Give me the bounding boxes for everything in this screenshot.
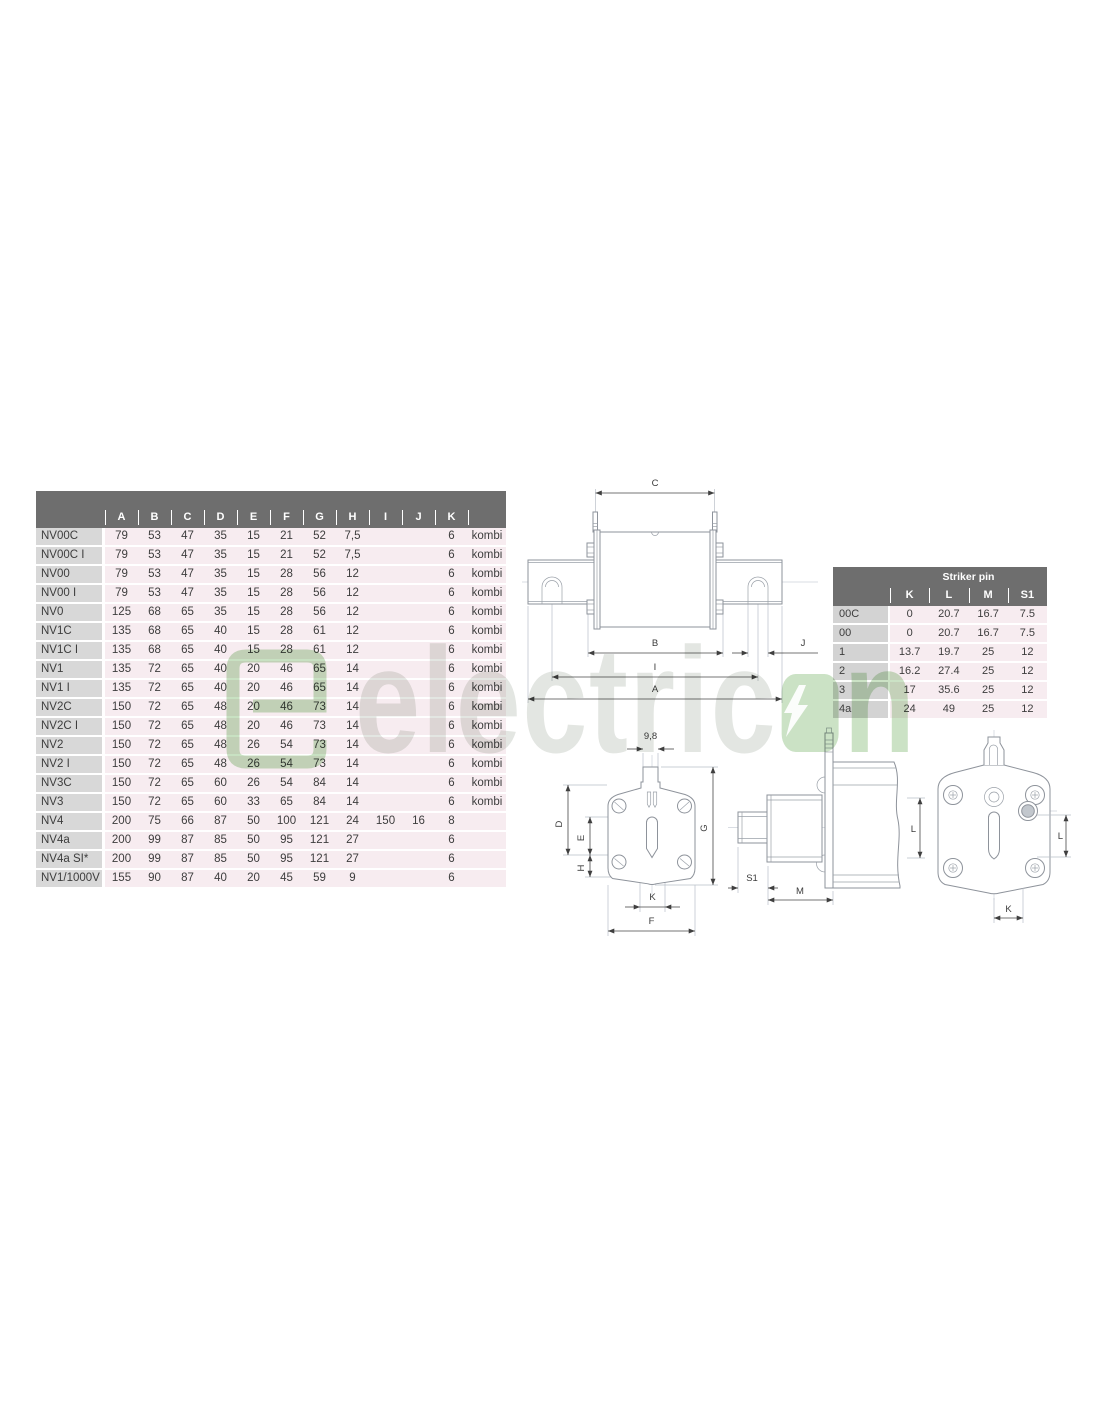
table-row: NV4a2009987855095121276 (36, 832, 506, 851)
cell: kombi (468, 642, 506, 659)
cell: 12 (336, 604, 369, 621)
col-header-m: M (969, 588, 1008, 603)
cell: 12 (336, 585, 369, 602)
cell: 12 (1008, 663, 1047, 680)
dim-label-i: I (654, 662, 657, 673)
col-header-g: G (303, 510, 336, 525)
cell (402, 585, 435, 602)
cell (402, 623, 435, 640)
cell (402, 851, 435, 868)
cell (468, 813, 506, 830)
cell: 6 (435, 737, 468, 754)
row-label: NV4 (36, 813, 105, 830)
cell: 20 (237, 699, 270, 716)
cell: 150 (369, 813, 402, 830)
cell: 12 (336, 623, 369, 640)
cell: 49 (929, 701, 968, 718)
main-table: ABCDEFGHIJKNV00C795347351521527,56kombiN… (36, 491, 506, 889)
cell: 35 (204, 585, 237, 602)
dim-label-98: 9,8 (644, 731, 657, 742)
cell: 53 (138, 566, 171, 583)
col-header-j: J (402, 510, 435, 525)
cell: 12 (336, 566, 369, 583)
cell: 16.2 (890, 663, 929, 680)
cell: 150 (105, 718, 138, 735)
cell: 48 (204, 699, 237, 716)
cell: 121 (303, 832, 336, 849)
cell: kombi (468, 528, 506, 545)
cell: 12 (1008, 682, 1047, 699)
cell: 150 (105, 775, 138, 792)
col-header-e: E (237, 510, 270, 525)
dim-label-s1: S1 (746, 873, 758, 884)
cell: 20.7 (929, 625, 968, 642)
table-row: 00020.716.77.5 (833, 625, 1047, 644)
cell: 65 (171, 794, 204, 811)
cell: 27 (336, 832, 369, 849)
row-label: NV1C (36, 623, 105, 640)
cell: 135 (105, 642, 138, 659)
dim-label-h: H (576, 864, 587, 871)
cell: 28 (270, 566, 303, 583)
table-row: NV1C I135686540152861126kombi (36, 642, 506, 661)
dim-label-d: D (554, 820, 565, 827)
cell: 26 (237, 775, 270, 792)
cell: 65 (171, 737, 204, 754)
cell (402, 870, 435, 887)
cell: 28 (270, 623, 303, 640)
cell (402, 775, 435, 792)
cell: 150 (105, 737, 138, 754)
row-label: 3 (833, 682, 890, 699)
cell (369, 528, 402, 545)
cell: 73 (303, 737, 336, 754)
cell: 6 (435, 585, 468, 602)
cell (402, 832, 435, 849)
cell: 79 (105, 566, 138, 583)
cell (369, 870, 402, 887)
row-label: NV00C I (36, 547, 105, 564)
cell: 9 (336, 870, 369, 887)
cell: kombi (468, 756, 506, 773)
cell (369, 661, 402, 678)
cell: 87 (171, 851, 204, 868)
cell: 47 (171, 547, 204, 564)
cell: 6 (435, 832, 468, 849)
cell: 56 (303, 566, 336, 583)
cell: 6 (435, 756, 468, 773)
datasheet-page: ABCDEFGHIJKNV00C795347351521527,56kombiN… (0, 0, 1100, 1422)
cell: 6 (435, 794, 468, 811)
cell: 61 (303, 623, 336, 640)
cell: 65 (171, 642, 204, 659)
cell: 40 (204, 661, 237, 678)
cell (402, 566, 435, 583)
cell: 6 (435, 566, 468, 583)
col-header-c: C (171, 510, 204, 525)
cell: 13.7 (890, 644, 929, 661)
cell (402, 661, 435, 678)
cell: 14 (336, 737, 369, 754)
cell: 25 (969, 644, 1008, 661)
cell: 16.7 (969, 606, 1008, 623)
cell: kombi (468, 585, 506, 602)
cell (402, 718, 435, 735)
cell: 65 (303, 661, 336, 678)
cell: 68 (138, 642, 171, 659)
table-row: 113.719.72512 (833, 644, 1047, 663)
fuse-side-view-drawing: S1 M L (725, 725, 925, 905)
cell: 53 (138, 528, 171, 545)
col-header-b: B (138, 510, 171, 525)
cell: 54 (270, 756, 303, 773)
table-row: NV00 I79534735152856126kombi (36, 585, 506, 604)
dim-label-k2: K (1005, 904, 1012, 915)
col-header-s1: S1 (1008, 588, 1047, 603)
table-row: NV2 I150726548265473146kombi (36, 756, 506, 775)
cell: 6 (435, 604, 468, 621)
cell: kombi (468, 718, 506, 735)
cell: 6 (435, 718, 468, 735)
row-label: NV0 (36, 604, 105, 621)
cell: 40 (204, 870, 237, 887)
cell: kombi (468, 680, 506, 697)
cell: 125 (105, 604, 138, 621)
cell: 35.6 (929, 682, 968, 699)
cell: 12 (1008, 644, 1047, 661)
row-label: 1 (833, 644, 890, 661)
cell (369, 680, 402, 697)
cell: 50 (237, 813, 270, 830)
row-label: NV3 (36, 794, 105, 811)
cell: 79 (105, 585, 138, 602)
cell: kombi (468, 566, 506, 583)
cell (369, 794, 402, 811)
row-label: NV4a (36, 832, 105, 849)
cell: 6 (435, 775, 468, 792)
dim-label-b: B (652, 638, 658, 649)
cell: 121 (303, 851, 336, 868)
row-label: 00C (833, 606, 890, 623)
cell: 20 (237, 870, 270, 887)
cell (369, 585, 402, 602)
table-row: NV3150726560336584146kombi (36, 794, 506, 813)
cell: 65 (171, 718, 204, 735)
cell: 35 (204, 547, 237, 564)
col-header-blank (468, 510, 506, 525)
cell: 8 (435, 813, 468, 830)
cell: 135 (105, 623, 138, 640)
cell: 19.7 (929, 644, 968, 661)
cell: 20 (237, 680, 270, 697)
cell: 72 (138, 699, 171, 716)
cell: 14 (336, 699, 369, 716)
table-row: NV2C I150726548204673146kombi (36, 718, 506, 737)
cell: kombi (468, 661, 506, 678)
cell: 14 (336, 718, 369, 735)
table-row: 4a24492512 (833, 701, 1047, 720)
cell: 27 (336, 851, 369, 868)
dim-label-c: C (652, 478, 659, 489)
cell: 65 (171, 661, 204, 678)
cell: 40 (204, 623, 237, 640)
cell: 6 (435, 547, 468, 564)
cell: 28 (270, 604, 303, 621)
cell: 53 (138, 547, 171, 564)
cell (369, 623, 402, 640)
cell: 28 (270, 585, 303, 602)
cell: 33 (237, 794, 270, 811)
cell: 85 (204, 851, 237, 868)
cell: kombi (468, 775, 506, 792)
table-row: NV00C795347351521527,56kombi (36, 528, 506, 547)
cell: kombi (468, 604, 506, 621)
dim-label-j: J (801, 638, 806, 649)
fuse-rear-view-drawing: L K (925, 728, 1100, 935)
cell: 21 (270, 528, 303, 545)
cell: 60 (204, 775, 237, 792)
row-label: NV3C (36, 775, 105, 792)
cell: 72 (138, 794, 171, 811)
cell: 150 (105, 794, 138, 811)
cell (369, 604, 402, 621)
striker-table-body: KLMS100C020.716.77.500020.716.77.5113.71… (833, 585, 1047, 720)
cell: 84 (303, 794, 336, 811)
cell: 6 (435, 680, 468, 697)
cell: 72 (138, 718, 171, 735)
cell: 6 (435, 642, 468, 659)
cell: kombi (468, 547, 506, 564)
cell: 72 (138, 680, 171, 697)
cell (402, 604, 435, 621)
cell: 35 (204, 528, 237, 545)
dim-label-g: G (699, 824, 710, 831)
col-header-k: K (890, 588, 929, 603)
main-table-header: ABCDEFGHIJK (36, 491, 506, 528)
cell: 15 (237, 642, 270, 659)
dim-label-k: K (649, 892, 656, 903)
cell: 28 (270, 642, 303, 659)
cell: 35 (204, 566, 237, 583)
cell (369, 851, 402, 868)
cell: 15 (237, 585, 270, 602)
cell (369, 699, 402, 716)
cell: 16.7 (969, 625, 1008, 642)
cell: 7,5 (336, 547, 369, 564)
cell: 65 (171, 623, 204, 640)
table-row: NV42007566875010012124150168 (36, 813, 506, 832)
cell: 61 (303, 642, 336, 659)
row-label: 2 (833, 663, 890, 680)
cell: 14 (336, 756, 369, 773)
cell: 17 (890, 682, 929, 699)
cell: 150 (105, 756, 138, 773)
cell: kombi (468, 794, 506, 811)
cell: 16 (402, 813, 435, 830)
table-row: NV1135726540204665146kombi (36, 661, 506, 680)
cell: 66 (171, 813, 204, 830)
cell: 46 (270, 680, 303, 697)
cell: 45 (270, 870, 303, 887)
cell: 6 (435, 851, 468, 868)
cell: 25 (969, 663, 1008, 680)
cell: 52 (303, 547, 336, 564)
cell (369, 718, 402, 735)
cell (402, 680, 435, 697)
cell: 6 (435, 528, 468, 545)
dim-label-l2: L (1058, 831, 1063, 842)
cell: 0 (890, 606, 929, 623)
dim-label-m: M (796, 886, 804, 897)
header-spacer (833, 588, 890, 603)
cell: 90 (138, 870, 171, 887)
cell: 65 (171, 604, 204, 621)
col-header-k: K (435, 510, 468, 525)
cell: 6 (435, 699, 468, 716)
cell: 135 (105, 661, 138, 678)
dim-label-l: L (911, 824, 916, 835)
row-label: NV00 I (36, 585, 105, 602)
table-row: NV2150726548265473146kombi (36, 737, 506, 756)
cell: 99 (138, 832, 171, 849)
cell: 79 (105, 528, 138, 545)
cell: 26 (237, 756, 270, 773)
cell: 68 (138, 604, 171, 621)
cell: 65 (270, 794, 303, 811)
table-row: 00C020.716.77.5 (833, 606, 1047, 625)
table-row: NV00C I795347351521527,56kombi (36, 547, 506, 566)
cell (468, 851, 506, 868)
cell: 7,5 (336, 528, 369, 545)
cell: 75 (138, 813, 171, 830)
cell: 20.7 (929, 606, 968, 623)
cell: 47 (171, 566, 204, 583)
cell (369, 547, 402, 564)
cell: 6 (435, 661, 468, 678)
table-row: NV1/1000V15590874020455996 (36, 870, 506, 889)
cell (402, 756, 435, 773)
cell: 52 (303, 528, 336, 545)
cell: 6 (435, 623, 468, 640)
cell: 47 (171, 528, 204, 545)
row-label: NV1/1000V (36, 870, 105, 887)
cell: 100 (270, 813, 303, 830)
cell: 65 (171, 775, 204, 792)
row-label: 4a (833, 701, 890, 718)
cell (402, 794, 435, 811)
cell: 59 (303, 870, 336, 887)
cell: 95 (270, 832, 303, 849)
cell (369, 775, 402, 792)
cell: 54 (270, 737, 303, 754)
cell: 200 (105, 813, 138, 830)
col-header-i: I (369, 510, 402, 525)
table-row: NV0079534735152856126kombi (36, 566, 506, 585)
cell: 150 (105, 699, 138, 716)
cell (369, 642, 402, 659)
table-row: NV3C150726560265484146kombi (36, 775, 506, 794)
cell: 40 (204, 642, 237, 659)
cell: 7.5 (1008, 625, 1047, 642)
cell: 87 (171, 832, 204, 849)
cell: 65 (171, 680, 204, 697)
cell: 46 (270, 718, 303, 735)
cell: kombi (468, 699, 506, 716)
cell: 200 (105, 851, 138, 868)
cell: 27.4 (929, 663, 968, 680)
cell: 14 (336, 680, 369, 697)
cell: 68 (138, 623, 171, 640)
cell: 48 (204, 737, 237, 754)
cell (468, 832, 506, 849)
cell: 15 (237, 547, 270, 564)
cell: 155 (105, 870, 138, 887)
table-row: NV2C150726548204673146kombi (36, 699, 506, 718)
row-label: NV2C I (36, 718, 105, 735)
table-row: NV1C135686540152861126kombi (36, 623, 506, 642)
cell: 87 (204, 813, 237, 830)
cell: 47 (171, 585, 204, 602)
cell: 15 (237, 566, 270, 583)
cell (402, 642, 435, 659)
col-header-a: A (105, 510, 138, 525)
cell: 87 (171, 870, 204, 887)
cell: 14 (336, 794, 369, 811)
table-row: 216.227.42512 (833, 663, 1047, 682)
row-label: NV1 (36, 661, 105, 678)
col-header-d: D (204, 510, 237, 525)
cell: 73 (303, 756, 336, 773)
striker-col-headers: KLMS1 (833, 585, 1047, 606)
fuse-end-view-drawing: 9,8 D E H G K F (545, 725, 750, 955)
cell: 15 (237, 604, 270, 621)
cell: 21 (270, 547, 303, 564)
cell: 72 (138, 661, 171, 678)
cell: 72 (138, 756, 171, 773)
cell: 24 (890, 701, 929, 718)
row-label: NV4a SI* (36, 851, 105, 868)
cell: 73 (303, 699, 336, 716)
cell: 12 (1008, 701, 1047, 718)
cell: 40 (204, 680, 237, 697)
cell: 6 (435, 870, 468, 887)
cell: 14 (336, 661, 369, 678)
dim-label-e: E (576, 835, 587, 841)
row-label: NV00C (36, 528, 105, 545)
cell: 0 (890, 625, 929, 642)
fuse-front-view-drawing: C B J I A (520, 470, 820, 710)
dim-label-a: A (652, 684, 659, 695)
cell: 20 (237, 661, 270, 678)
dim-label-f: F (649, 916, 655, 927)
cell: 135 (105, 680, 138, 697)
cell: 65 (303, 680, 336, 697)
cell (369, 756, 402, 773)
cell: 79 (105, 547, 138, 564)
cell: 15 (237, 623, 270, 640)
cell: 48 (204, 756, 237, 773)
table-row: 31735.62512 (833, 682, 1047, 701)
cell (369, 832, 402, 849)
striker-table-header: Striker pin (833, 567, 1047, 585)
table-row: NV4a SI*2009987855095121276 (36, 851, 506, 870)
cell: 20 (237, 718, 270, 735)
cell: 84 (303, 775, 336, 792)
row-label: NV1C I (36, 642, 105, 659)
cell: 121 (303, 813, 336, 830)
cell: 50 (237, 851, 270, 868)
cell (468, 870, 506, 887)
